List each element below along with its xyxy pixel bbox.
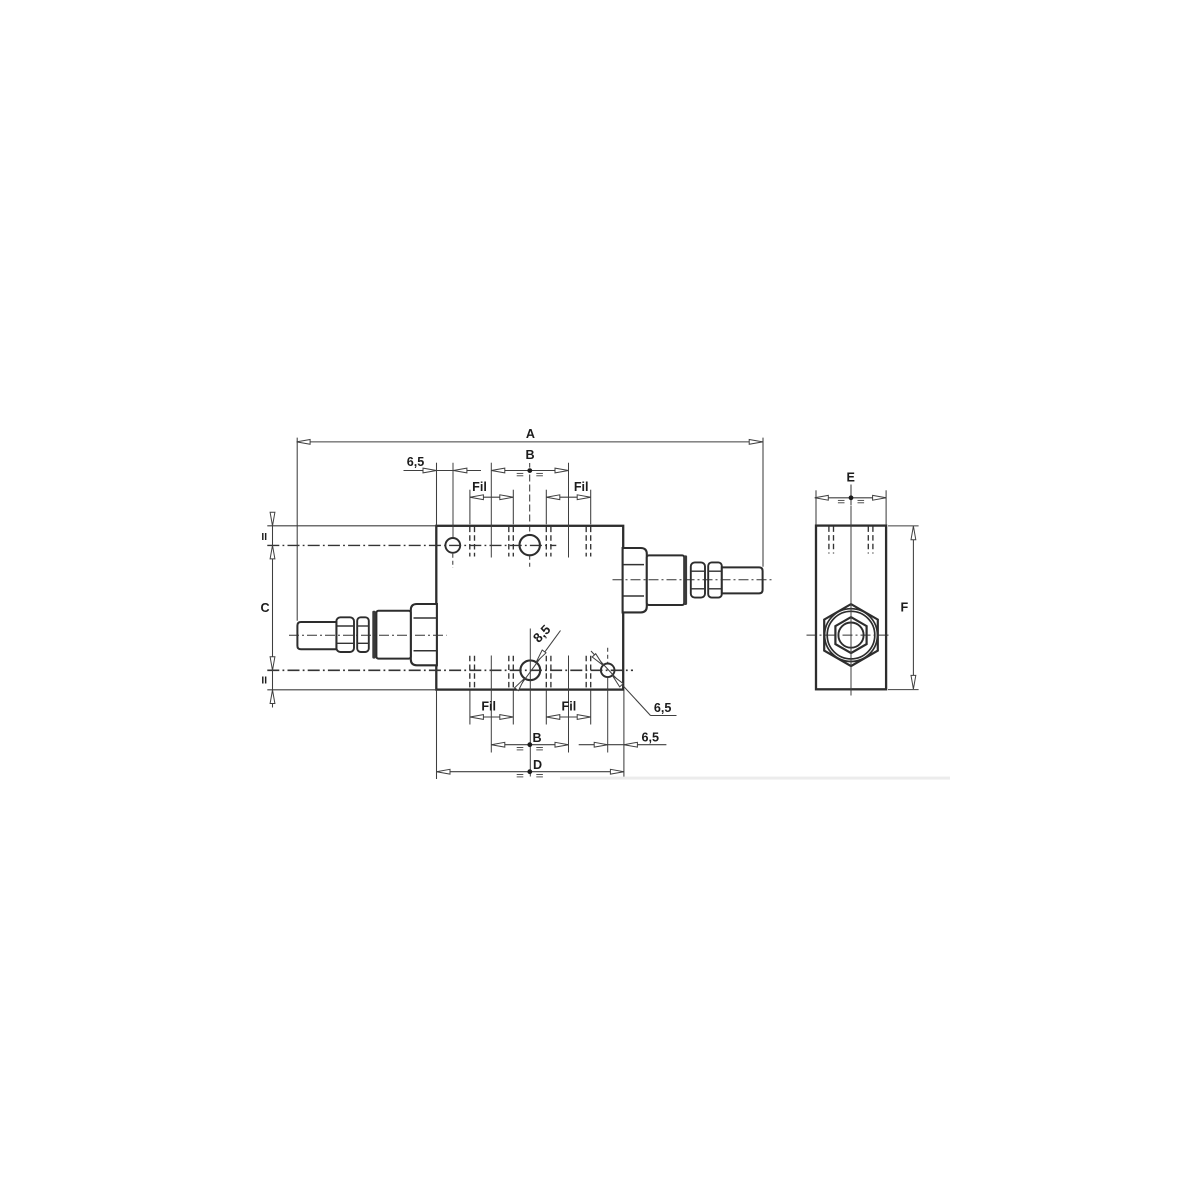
svg-text:B: B [532, 731, 541, 745]
svg-text:E: E [846, 471, 854, 485]
svg-text:D: D [533, 758, 542, 772]
svg-text:Fil: Fil [472, 480, 487, 494]
svg-text:F: F [900, 601, 908, 615]
svg-text:C: C [260, 601, 269, 615]
svg-text:II: II [261, 532, 267, 543]
svg-text:A: A [526, 427, 535, 441]
svg-text:B: B [525, 448, 534, 462]
svg-text:II: II [261, 675, 267, 686]
svg-text:Fil: Fil [562, 699, 577, 713]
svg-text:Fil: Fil [481, 699, 496, 713]
svg-text:6,5: 6,5 [654, 701, 672, 715]
svg-text:Fil: Fil [574, 480, 589, 494]
svg-text:6,5: 6,5 [407, 455, 425, 469]
svg-text:6,5: 6,5 [641, 731, 659, 745]
